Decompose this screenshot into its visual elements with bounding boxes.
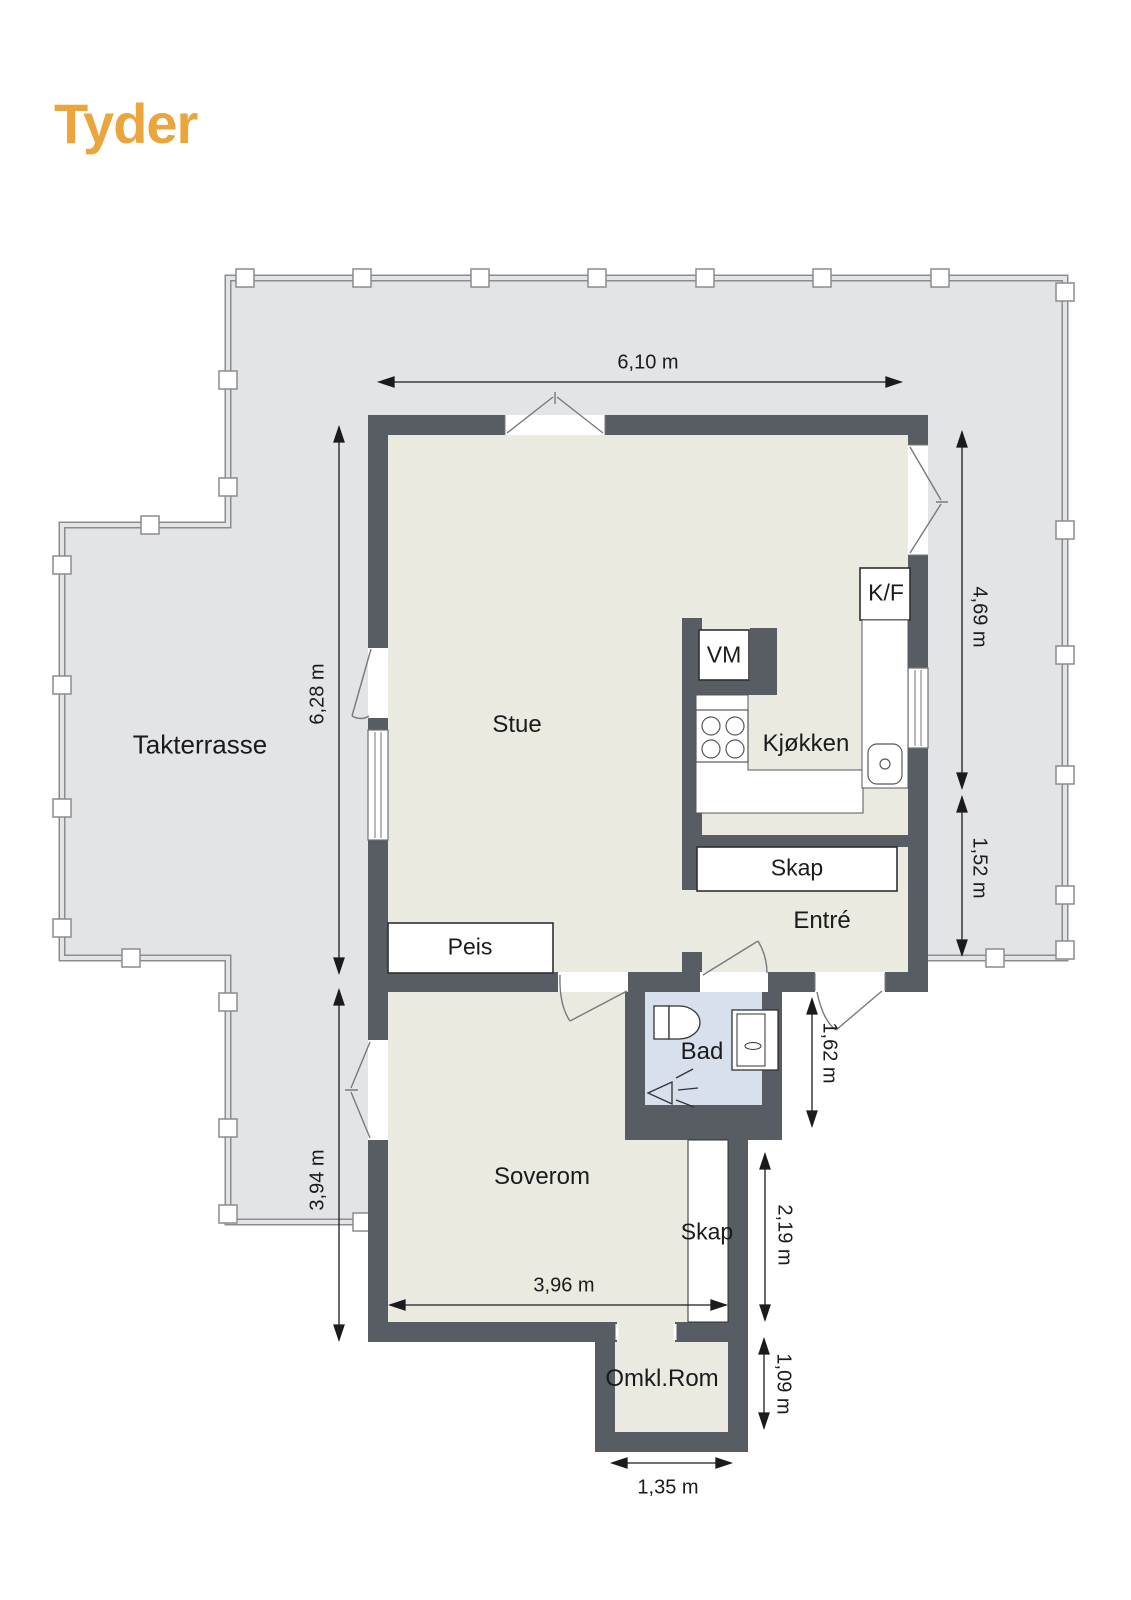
fixture-label-fridge-freezer: K/F	[868, 580, 904, 607]
floor-plan-page: Tyder	[0, 0, 1131, 1600]
door-entry-front	[815, 972, 885, 1030]
dim-label-bedroom-height: 3,94 m	[307, 1149, 330, 1210]
window-kitchen-right	[908, 668, 928, 748]
dim-label-living-width: 6,10 m	[617, 352, 678, 375]
room-label-living: Stue	[492, 711, 541, 739]
window-living-left	[368, 730, 388, 840]
room-label-terrace: Takterrasse	[133, 730, 267, 761]
dim-bathroom-side-height	[807, 999, 817, 1126]
dim-label-changing-room-width: 1,35 m	[637, 1477, 698, 1500]
room-label-changing-room: Omkl.Rom	[605, 1365, 718, 1393]
room-label-kitchen: Kjøkken	[763, 730, 850, 758]
dim-label-kitchen-side-height: 4,69 m	[968, 586, 991, 647]
fixture-label-bedroom-closet: Skap	[681, 1219, 733, 1246]
shower-cabinet-icon	[732, 1010, 778, 1070]
stove-icon	[696, 710, 748, 762]
room-label-bathroom: Bad	[681, 1038, 724, 1066]
dim-label-bedroom-width: 3,96 m	[533, 1275, 594, 1298]
dim-label-living-height: 6,28 m	[307, 663, 330, 724]
dim-closet-side-height	[760, 1154, 770, 1320]
fixture-label-entry-closet: Skap	[771, 855, 823, 882]
fixture-label-washing-machine: VM	[707, 642, 742, 669]
dim-changing-room-height	[759, 1339, 769, 1428]
room-label-bedroom: Soverom	[494, 1163, 590, 1191]
dim-label-entry-side-height: 1,52 m	[968, 837, 991, 898]
sink-icon	[868, 744, 902, 784]
dim-changing-room-width	[612, 1458, 731, 1468]
fixture-label-fireplace: Peis	[448, 934, 493, 961]
floor-plan-drawing	[0, 0, 1131, 1600]
room-label-entry: Entré	[793, 907, 850, 935]
dim-label-closet-side-height: 2,19 m	[773, 1204, 796, 1265]
dim-label-bathroom-side-height: 1,62 m	[818, 1022, 841, 1083]
toilet-icon	[654, 1006, 700, 1039]
dim-label-changing-room-height: 1,09 m	[772, 1353, 795, 1414]
